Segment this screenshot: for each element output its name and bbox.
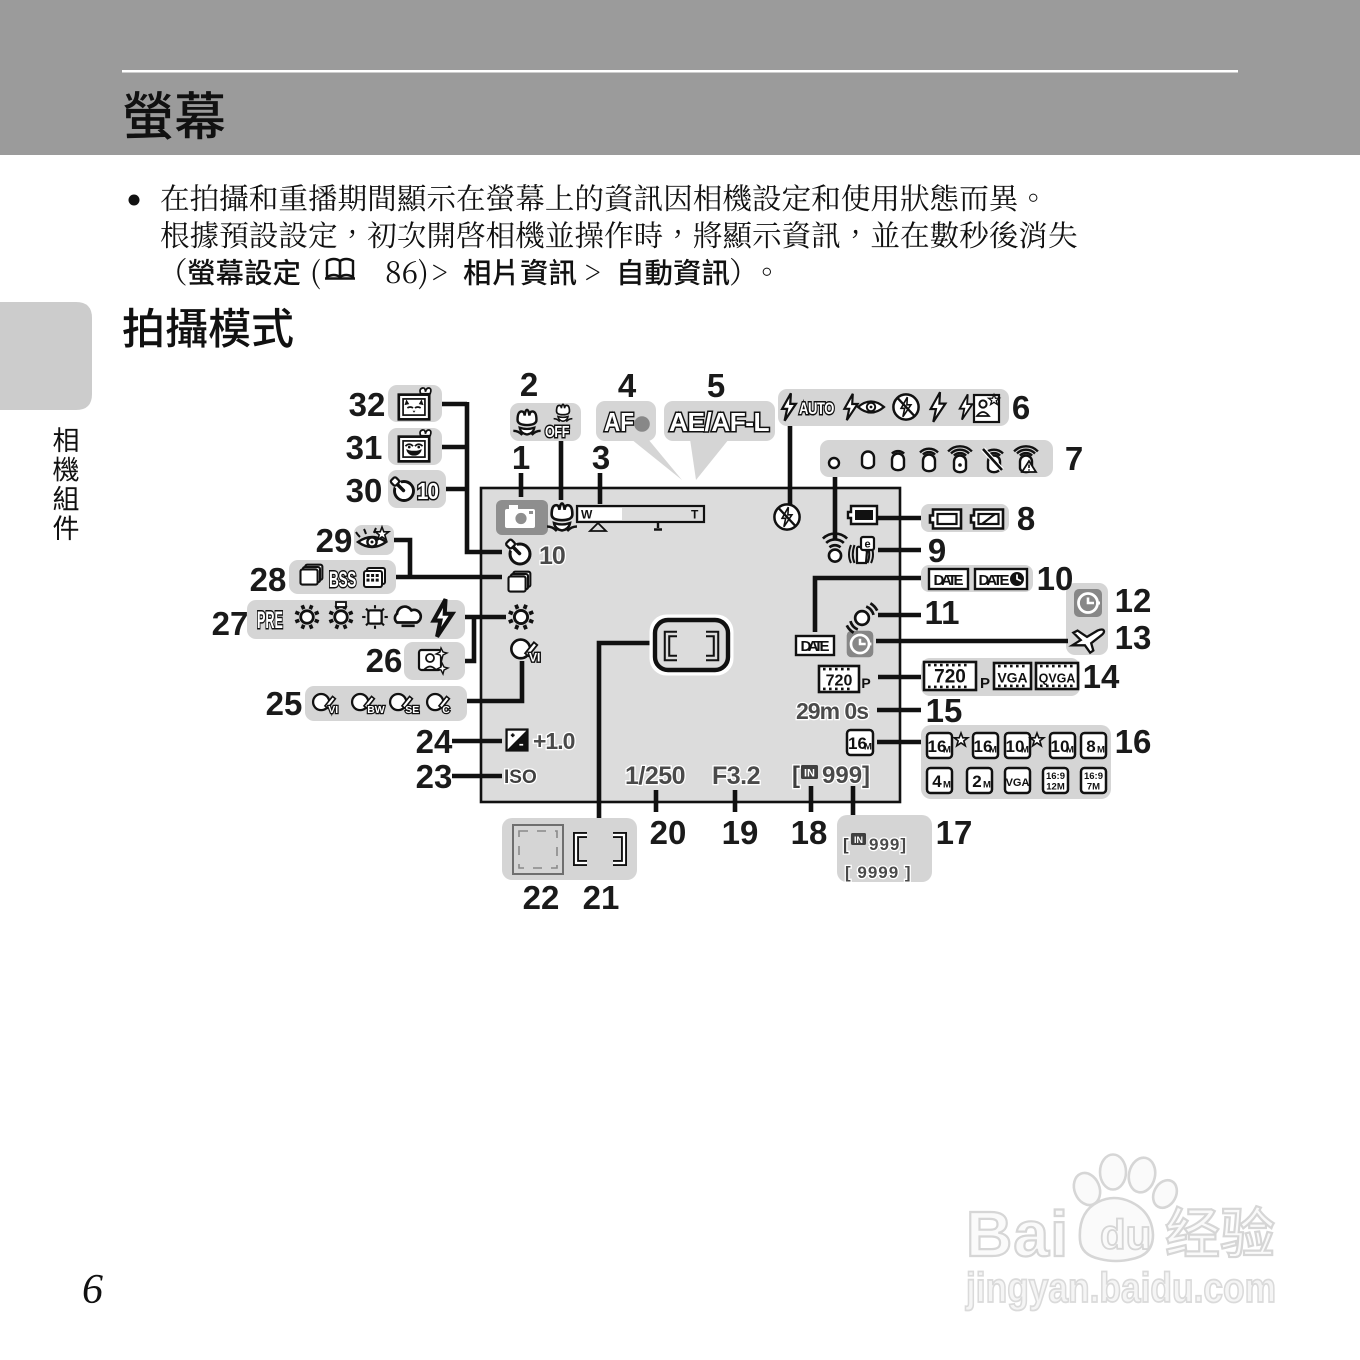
svg-text:9: 9 <box>928 532 946 569</box>
svg-text:10: 10 <box>539 542 565 570</box>
svg-text:16:9: 16:9 <box>1084 771 1103 782</box>
svg-text:C: C <box>442 705 450 716</box>
svg-text:ISO: ISO <box>504 767 537 788</box>
svg-text:M: M <box>1066 745 1074 756</box>
svg-text:2: 2 <box>520 366 538 403</box>
svg-text:e: e <box>864 539 870 551</box>
svg-text:11: 11 <box>925 594 960 631</box>
svg-text:BW: BW <box>367 705 385 716</box>
svg-text:VGA: VGA <box>997 670 1027 686</box>
svg-text:IN: IN <box>854 835 863 845</box>
svg-text:720: 720 <box>934 667 966 688</box>
svg-text:4: 4 <box>618 367 637 404</box>
svg-text:+1.0: +1.0 <box>533 728 575 754</box>
svg-text:M: M <box>943 780 951 791</box>
svg-text:6: 6 <box>82 1267 103 1313</box>
svg-text:21: 21 <box>583 879 620 916</box>
svg-text:12M: 12M <box>1046 782 1065 793</box>
svg-text:jingyan.baidu.com: jingyan.baidu.com <box>965 1264 1276 1311</box>
svg-text:4: 4 <box>932 772 942 791</box>
svg-text:24: 24 <box>416 723 453 760</box>
svg-text:18: 18 <box>791 814 828 851</box>
svg-text:SE: SE <box>405 705 419 716</box>
svg-text:999]: 999] <box>822 762 870 789</box>
svg-text:IN: IN <box>804 768 815 780</box>
svg-text:P: P <box>861 675 870 691</box>
svg-text:DATE: DATE <box>801 638 830 655</box>
svg-text:M: M <box>943 745 951 756</box>
svg-text:7: 7 <box>1065 440 1083 477</box>
svg-text:[ 9999 ]: [ 9999 ] <box>845 863 912 882</box>
svg-text:32: 32 <box>349 386 386 423</box>
svg-text:AF: AF <box>604 407 634 437</box>
svg-text:M: M <box>989 745 997 756</box>
svg-text:8: 8 <box>1017 500 1035 537</box>
svg-text:17: 17 <box>936 814 973 851</box>
svg-text:VI: VI <box>529 651 540 665</box>
svg-text:BSS: BSS <box>329 567 356 592</box>
svg-text:QVGA: QVGA <box>1039 672 1076 686</box>
svg-text:20: 20 <box>650 814 687 851</box>
svg-text:AE/AF-L: AE/AF-L <box>669 407 770 437</box>
svg-text:29: 29 <box>316 522 353 559</box>
svg-text:25: 25 <box>266 685 303 722</box>
svg-text:3: 3 <box>592 439 610 476</box>
svg-text:1: 1 <box>512 439 530 476</box>
svg-text:29m 0s: 29m 0s <box>796 698 868 724</box>
svg-text:16:9: 16:9 <box>1046 771 1065 782</box>
svg-text:Bai: Bai <box>966 1198 1070 1270</box>
svg-text:15: 15 <box>926 692 963 729</box>
svg-text:14: 14 <box>1083 658 1120 695</box>
svg-text:720: 720 <box>826 673 853 690</box>
svg-text:DATE: DATE <box>979 572 1010 589</box>
svg-text:DATE: DATE <box>934 572 964 589</box>
svg-text:2: 2 <box>972 772 981 791</box>
svg-text:W: W <box>581 508 593 522</box>
svg-text:12: 12 <box>1115 582 1152 619</box>
svg-text:M: M <box>1097 745 1105 756</box>
svg-text:M: M <box>1021 745 1029 756</box>
svg-text:13: 13 <box>1115 619 1152 656</box>
svg-text:7M: 7M <box>1087 782 1100 793</box>
svg-text:22: 22 <box>523 879 560 916</box>
svg-text:28: 28 <box>250 561 287 598</box>
svg-text:19: 19 <box>722 814 759 851</box>
svg-text:AUTO: AUTO <box>799 399 834 418</box>
svg-text:F3.2: F3.2 <box>712 762 760 790</box>
svg-text:du: du <box>1100 1211 1151 1258</box>
svg-text:T: T <box>691 508 699 522</box>
svg-text:16: 16 <box>1115 723 1152 760</box>
svg-text:26: 26 <box>366 642 403 679</box>
svg-text:[: [ <box>792 762 800 789</box>
svg-text:10: 10 <box>417 478 438 504</box>
svg-text:10: 10 <box>1037 560 1074 597</box>
svg-text:31: 31 <box>346 429 383 466</box>
svg-text:VI: VI <box>328 705 338 716</box>
svg-text:[: [ <box>843 835 849 854</box>
svg-text:M: M <box>983 780 991 791</box>
svg-text:30: 30 <box>346 472 383 509</box>
svg-text:M: M <box>864 742 872 753</box>
svg-text:PRE: PRE <box>257 607 283 634</box>
svg-text:1/250: 1/250 <box>625 762 685 790</box>
svg-text:23: 23 <box>416 758 453 795</box>
svg-text:VGA: VGA <box>1006 777 1030 789</box>
svg-text:6: 6 <box>1012 389 1030 426</box>
svg-text:999]: 999] <box>869 835 907 854</box>
svg-text:5: 5 <box>707 367 725 404</box>
svg-text:P: P <box>980 675 990 692</box>
svg-text:OFF: OFF <box>545 424 570 441</box>
svg-text:8: 8 <box>1086 737 1095 756</box>
svg-text:27: 27 <box>212 605 249 642</box>
